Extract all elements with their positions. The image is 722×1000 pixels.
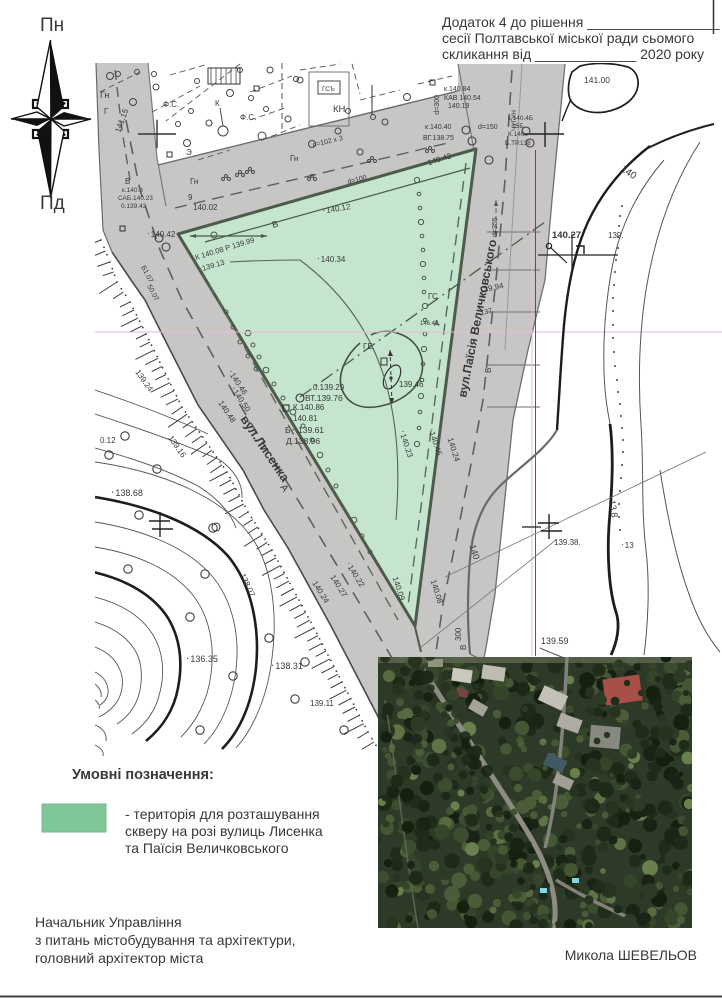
svg-text:Микола ШЕВЕЛЬОВ: Микола ШЕВЕЛЬОВ [565,947,697,963]
svg-text:140.81: 140.81 [293,414,318,423]
svg-text:Пд: Пд [40,193,65,214]
svg-text:к.140.40: к.140.40 [425,124,452,131]
svg-text:ГС: ГС [428,292,438,301]
svg-text:Г: Г [104,107,109,116]
svg-text:140: 140 [618,163,638,182]
svg-text:ВТ.139.76: ВТ.139.76 [305,393,343,403]
svg-text:Гн: Гн [100,90,109,100]
svg-text:САБ.140.23: САБ.140.23 [118,195,153,202]
svg-text:300: 300 [454,627,463,641]
svg-text:d=150: d=150 [478,124,498,131]
svg-text:к.140.4Б: к.140.4Б [508,115,533,122]
svg-text:139.11: 139.11 [310,699,334,708]
svg-text:Гн: Гн [290,154,298,163]
svg-text:Д.138.96: Д.138.96 [286,436,320,446]
svg-text:В: В [125,177,130,186]
svg-text:139.46: 139.46 [399,380,424,389]
svg-text:139.16: 139.16 [166,434,188,460]
svg-text:К.140: К.140 [508,131,525,138]
svg-text:d=355: d=355 [492,217,499,237]
svg-text:9: 9 [188,193,193,202]
svg-text:Б.ТР.138: Б.ТР.138 [505,140,531,147]
svg-text:᛫138.68: ᛫138.68 [110,488,143,498]
svg-text:головний архітектор міста: головний архітектор міста [35,950,204,966]
svg-text:скверу на розі вулиць Лисенка: скверу на розі вулиць Лисенка [125,823,323,839]
svg-text:К.140.86: К.140.86 [293,403,325,412]
svg-text:Э: Э [186,148,192,157]
svg-text:Гн: Гн [190,177,198,186]
svg-text:ВГ.138.75: ВГ.138.75 [423,135,454,142]
svg-text:᛫13: ᛫13 [620,541,634,550]
svg-text:Умовні позначення:: Умовні позначення: [72,767,214,783]
svg-text:15Б.: 15Б. [512,123,525,130]
svg-text:139.24: 139.24 [133,368,155,394]
svg-text:᛫140.34: ᛫140.34 [316,255,346,264]
svg-text:В: В [484,368,493,373]
svg-text:139.38.: 139.38. [554,538,581,547]
svg-text:К: К [215,99,220,108]
svg-text:к.140.3: к.140.3 [122,187,143,194]
svg-text:141.00: 141.00 [584,75,610,85]
svg-text:140.19: 140.19 [448,103,470,110]
svg-text:140.02: 140.02 [193,203,218,212]
svg-text:скликання від _____________ 20: скликання від _____________ 2020 року [442,46,704,62]
svg-text:В: В [459,645,468,650]
svg-text:КН: КН [333,104,346,115]
svg-text:0.139.29: 0.139.29 [313,383,345,392]
svg-text:᛫140.42: ᛫140.42 [146,230,176,239]
svg-text:᛫136.35: ᛫136.35 [185,654,218,664]
svg-text:Б᛫.139.61: Б᛫.139.61 [285,425,324,435]
svg-text:d=300: d=300 [434,95,441,115]
svg-text:сесії Полтавської міської ради: сесії Полтавської міської ради сьомого [442,30,694,46]
svg-text:Ф.С.: Ф.С. [163,100,179,109]
svg-text:0.139.43: 0.139.43 [121,203,147,210]
svg-text:0.12: 0.12 [100,436,116,445]
svg-text:140.27: 140.27 [552,230,581,241]
svg-text:КАВ 140.54: КАВ 140.54 [444,95,481,102]
svg-text:та Паїсія Величковського: та Паїсія Величковського [125,840,289,856]
svg-text:139.: 139. [608,231,624,240]
svg-text:138.07: 138.07 [238,572,257,598]
svg-text:Пн: Пн [40,15,64,36]
svg-text:з питань містобудування та арх: з питань містобудування та архітектури, [35,932,296,948]
svg-text:Додаток 4 до рішення _________: Додаток 4 до рішення _________________ [442,14,720,30]
svg-text:ГСЪ: ГСЪ [322,86,335,93]
svg-text:- територія для розташування: - територія для розташування [125,806,320,822]
svg-text:146.41.: 146.41. [420,321,440,327]
svg-text:ГЕ: ГЕ [363,342,373,351]
svg-text:Начальник Управління: Начальник Управління [35,914,182,930]
svg-text:к.140.84: к.140.84 [444,86,471,93]
svg-text:139.59: 139.59 [541,636,569,646]
svg-text:Ф.С.: Ф.С. [240,113,256,122]
svg-text:᛫138.31: ᛫138.31 [270,661,303,671]
